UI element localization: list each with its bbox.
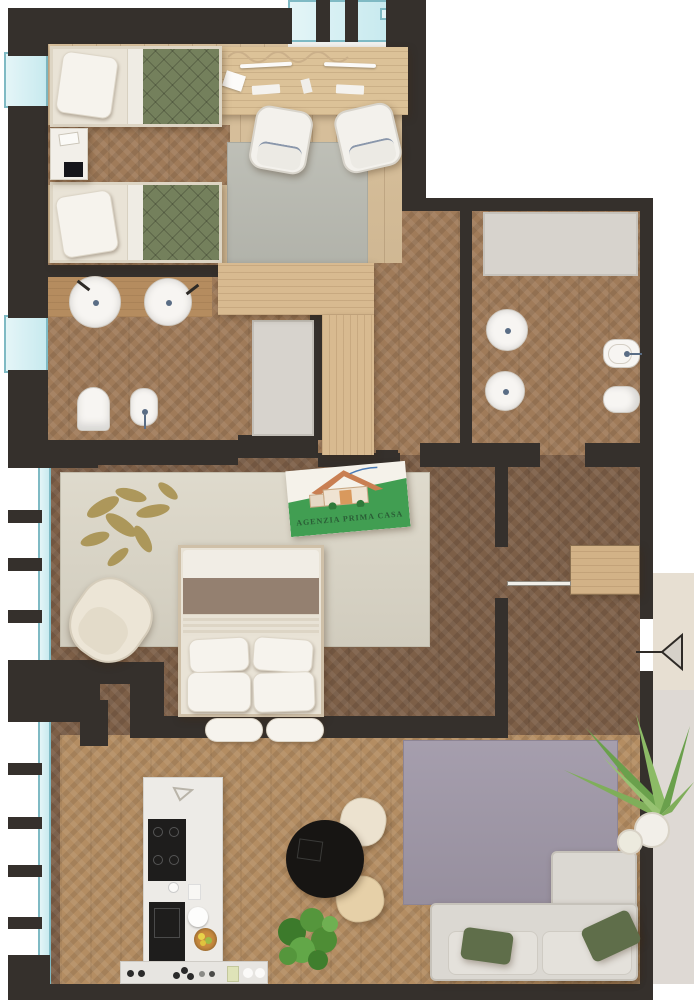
bath1-sink-2 xyxy=(144,278,192,326)
knob xyxy=(138,970,145,977)
fruit xyxy=(200,940,206,946)
glazed-wall-living xyxy=(38,720,51,985)
wall-left-a xyxy=(8,106,48,318)
wall-wardrobe-bottom xyxy=(238,435,318,458)
wall-right-upper xyxy=(640,198,653,619)
wall-master-right-upper xyxy=(495,455,508,547)
knob xyxy=(199,971,205,977)
chair-seat-cushion xyxy=(347,136,397,170)
knob xyxy=(173,972,180,979)
sink-drain xyxy=(93,300,99,306)
mullion-tick xyxy=(8,763,42,775)
bed-pillow xyxy=(187,672,251,712)
agency-logo: AGENZIA PRIMA CASA xyxy=(285,461,410,537)
wall-bath2-left xyxy=(460,211,472,443)
mullion-tick xyxy=(8,558,42,571)
bath1-shower xyxy=(252,320,314,436)
wall-master-right-lower xyxy=(495,598,508,730)
window-left-upper xyxy=(4,52,48,108)
wall-left-corner xyxy=(8,8,48,56)
wardrobe-horizontal xyxy=(218,263,374,315)
sink-drain xyxy=(503,389,509,395)
sink-drain xyxy=(166,300,172,306)
island-sink-cabinet xyxy=(149,902,185,964)
mullion-tick xyxy=(8,917,42,929)
master-bed xyxy=(178,545,324,717)
knob xyxy=(181,967,188,974)
sink-basin xyxy=(154,908,180,938)
sink-drain xyxy=(505,328,511,334)
burner xyxy=(153,855,163,865)
bath1-toilet xyxy=(77,387,110,431)
mullion-tick xyxy=(8,610,42,623)
window-top xyxy=(288,0,388,42)
bath2-sink-1 xyxy=(486,309,528,351)
desk-cable-squiggle xyxy=(228,49,398,63)
mullion-tick xyxy=(8,510,42,523)
entry-door-arrow-icon xyxy=(636,631,686,673)
sliding-door xyxy=(507,581,571,586)
fruit xyxy=(205,937,212,944)
burner xyxy=(169,855,179,865)
burner xyxy=(169,827,179,837)
floor-plant xyxy=(268,898,346,982)
knob xyxy=(209,971,215,977)
bath2-sink-2 xyxy=(485,371,525,411)
bed-quilt-green xyxy=(143,49,219,124)
mullion-tick xyxy=(8,817,42,829)
wall-hall-bottom-a xyxy=(420,443,540,467)
bath1-bidet xyxy=(130,388,158,426)
wall-hall-bottom-b xyxy=(585,443,652,467)
window-post-b xyxy=(345,0,358,42)
bed-duvet-top xyxy=(183,550,319,580)
bed-throw-brown xyxy=(183,578,319,614)
fruit xyxy=(198,933,205,940)
burner xyxy=(153,827,163,837)
nightstand xyxy=(50,128,88,180)
twin-bed-2 xyxy=(50,182,222,263)
table-napkin xyxy=(297,838,324,861)
wall-bottom-left-corner xyxy=(8,955,50,1000)
bed-sheet-fold xyxy=(127,49,143,124)
bed-duvet-texture xyxy=(183,614,319,636)
chair-seat-cushion xyxy=(255,140,302,171)
sofa-green-cushion xyxy=(460,927,514,966)
book xyxy=(58,132,79,147)
bath1-sink-1 xyxy=(69,276,121,328)
wall-master-bottom-step xyxy=(130,684,164,738)
bath2-shower xyxy=(483,212,638,276)
bed-pillow xyxy=(252,671,315,713)
wall-bottom xyxy=(8,984,653,1000)
dish-rack xyxy=(227,966,239,982)
palm-pot-small xyxy=(618,830,642,854)
entry-closet xyxy=(570,545,640,595)
bed-pillow xyxy=(55,50,119,119)
dining-table xyxy=(286,820,364,898)
kitchen-island xyxy=(143,777,223,967)
paper-sheet xyxy=(222,70,246,91)
floor-plan: AGENZIA PRIMA CASA xyxy=(0,0,694,1000)
bed-sheet-fold xyxy=(127,185,143,260)
cooktop xyxy=(148,819,186,881)
bed-bench-cushion xyxy=(205,718,263,742)
napkin xyxy=(188,884,201,900)
bed-pillow xyxy=(252,636,314,674)
bed-pillow xyxy=(188,636,250,673)
wall-mid-left-step xyxy=(80,700,108,746)
dish xyxy=(255,968,265,978)
dish xyxy=(243,968,253,978)
bidet-faucet-line xyxy=(144,415,146,429)
bed-pillow xyxy=(54,189,119,259)
keyboard xyxy=(336,84,364,94)
wall-master-bottom-a xyxy=(98,662,164,684)
bed-bench-cushion xyxy=(266,718,324,742)
bath2-bidet xyxy=(603,339,640,368)
logo-house-icon xyxy=(299,464,394,512)
knob xyxy=(187,973,194,980)
logo-tagline-script xyxy=(349,467,377,474)
window-left-lower xyxy=(4,315,48,373)
twin-bed-1 xyxy=(50,46,222,127)
wall-bath1-top xyxy=(48,265,218,277)
wardrobe-vertical xyxy=(322,315,374,455)
wall-bath2-top xyxy=(402,198,652,211)
mullion-tick xyxy=(8,865,42,877)
tablet xyxy=(64,162,83,177)
knob xyxy=(127,970,134,977)
fruit-bowl xyxy=(194,928,217,951)
bath2-toilet xyxy=(603,386,640,413)
palm-plant xyxy=(558,712,694,862)
plate xyxy=(188,907,208,927)
cup xyxy=(168,882,179,893)
bed-quilt-green xyxy=(143,185,219,260)
wall-bath1-bottom xyxy=(48,440,238,465)
window-post-a xyxy=(316,0,330,42)
paper-sheet xyxy=(300,78,312,94)
monitor xyxy=(324,62,376,68)
office-chair-1 xyxy=(247,103,315,176)
wine-glass-icon xyxy=(172,786,194,804)
bidet-faucet-line xyxy=(630,353,642,355)
wall-counter xyxy=(120,961,268,984)
keyboard xyxy=(252,84,281,95)
wall-top-outer xyxy=(8,8,292,44)
